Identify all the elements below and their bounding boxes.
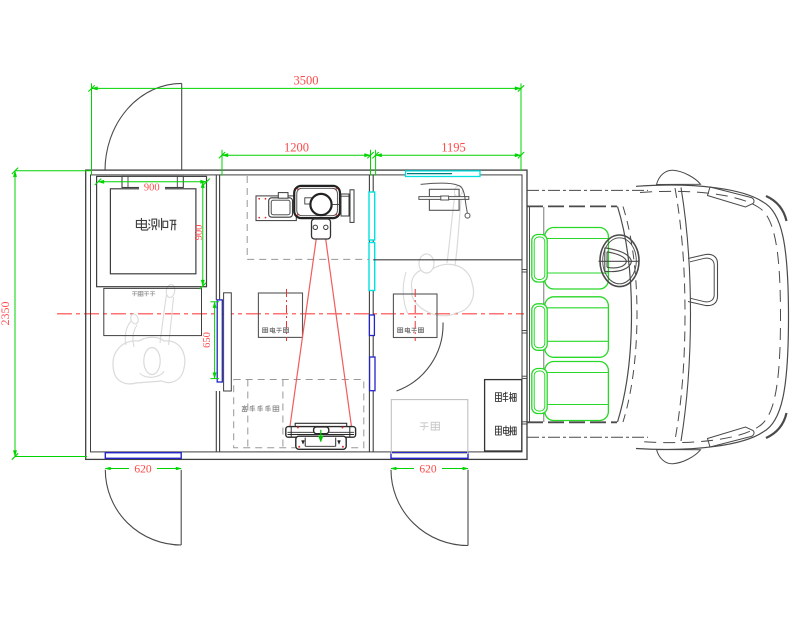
svg-text:900: 900 bbox=[194, 225, 205, 241]
svg-text:2350: 2350 bbox=[0, 302, 12, 326]
svg-text:650: 650 bbox=[202, 332, 213, 348]
svg-text:1195: 1195 bbox=[441, 141, 466, 155]
svg-text:3500: 3500 bbox=[294, 74, 319, 88]
svg-text:1200: 1200 bbox=[284, 141, 309, 155]
svg-text:620: 620 bbox=[134, 463, 152, 475]
svg-text:900: 900 bbox=[144, 183, 160, 194]
svg-text:620: 620 bbox=[419, 463, 437, 475]
